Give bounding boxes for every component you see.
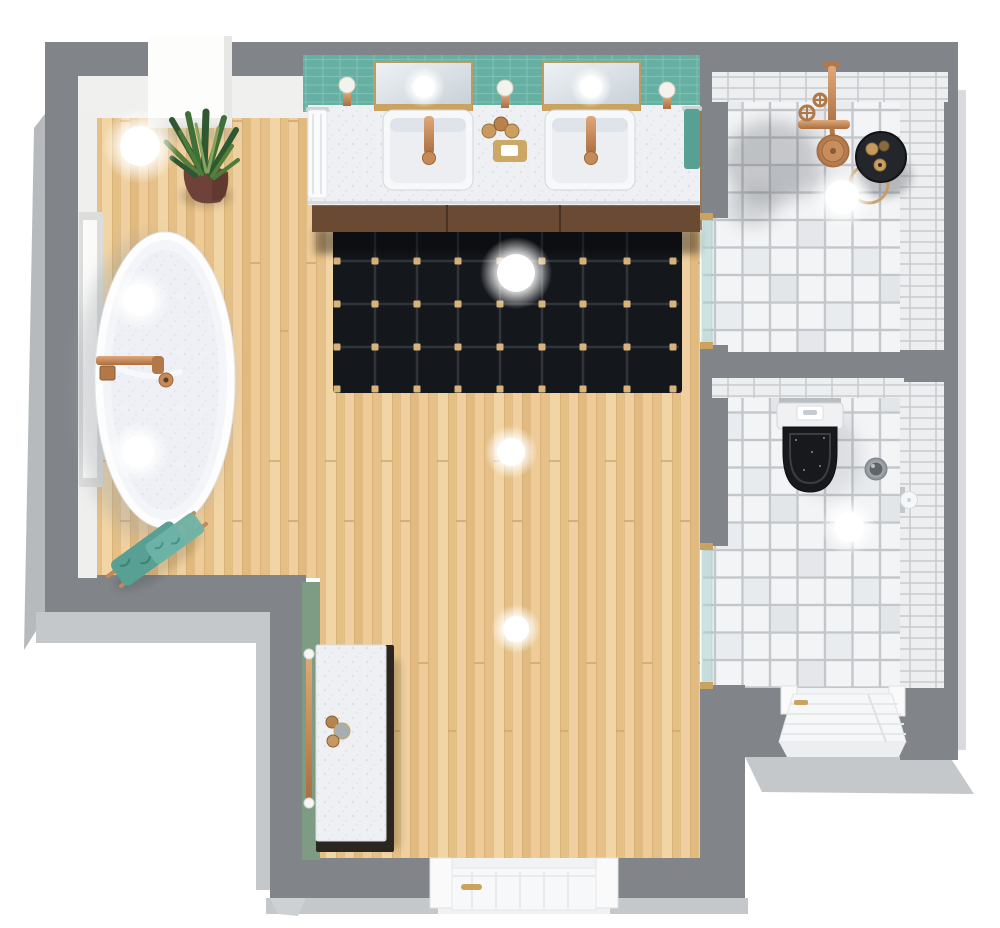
door-jamb-left [430,858,452,908]
towel-teal-vanity[interactable] [682,106,702,169]
stool-bottle [866,143,878,155]
ceiling-light [580,76,602,98]
tub-drain-hole [164,378,169,383]
soap-bar [501,145,518,156]
stool-bottle-nozzle [878,163,882,167]
stool-bottle [879,141,889,151]
toiletry-bottle [505,124,519,138]
shower-pole [828,66,836,128]
hinge [700,682,713,689]
door-handle [794,700,808,705]
floor-plan-canvas [0,0,1000,928]
divider-shower-wc [705,352,940,380]
floor-plan-render [0,0,1000,928]
lower-left-wall [45,575,306,612]
sink-drain [423,152,436,165]
glass-door-wc[interactable] [700,543,713,689]
wc-bottom-outer-face [745,757,974,794]
vanity-countertop-edge [308,201,700,204]
tub-spout-pipe [96,356,160,365]
sconce-bulb [659,82,675,98]
vanity-drawer-front [312,203,700,232]
ceiling-light [413,76,435,98]
lower-left-wall-outer-face [36,612,290,643]
ceiling-light [503,616,529,642]
wc-right-wall-tiles [900,382,944,688]
tub-spout-end [152,356,164,374]
side-cabinet[interactable] [304,645,400,852]
faucet [586,116,596,154]
sink-drain [585,152,598,165]
towel-cloth [684,109,700,169]
notch-wall [270,575,306,898]
bottom-wall-left [270,858,438,898]
towel-cloth [308,110,327,198]
ceiling-light [825,180,859,214]
sconce-bulb [497,80,513,96]
shower-head-center [830,148,836,154]
shower-right-wall-tiles [900,98,944,350]
notch-wall-outer-face [256,618,270,890]
jar-gold [327,735,339,747]
rail-cap-bottom [304,798,314,808]
faucet [424,116,434,154]
door-handle [461,884,482,890]
door-panel-face [779,742,906,757]
toilet-flush-button [803,410,817,415]
toilet[interactable] [777,398,843,492]
wc-bottom-wall-left [705,688,790,757]
sink-right[interactable] [545,110,635,190]
vanity-drawer-seam [559,203,561,232]
ceiling-light [122,436,154,468]
wc-top-wall-tiles [712,378,904,398]
hinge [700,342,713,349]
ceiling-light [123,284,155,316]
glass-panel [702,546,712,687]
sconce-mount [343,92,351,106]
hinge [700,213,713,220]
rail-cap-top [304,649,314,659]
tub-valve [100,366,115,380]
waste-bin[interactable] [865,458,887,480]
vanity-drawer-seam [446,203,448,232]
sink-left[interactable] [383,110,473,190]
glass-door-shower[interactable] [700,213,713,349]
bin-lid [870,463,883,476]
cabinet-ladder-rail [306,658,312,800]
ceiling-light [834,512,864,542]
ceiling-light [120,126,160,166]
exterior-door-wc[interactable] [779,686,906,757]
door-jamb-right [596,858,618,908]
cabinet-top-speckle [316,645,386,841]
tp-roll-core [907,498,911,502]
sconce-bulb [339,77,355,93]
niche-side-face [224,36,232,126]
bin-highlight [871,464,875,468]
glass-panel [702,216,712,347]
ceiling-light [497,438,525,466]
exterior-door-main[interactable] [430,858,618,914]
ceiling-light [497,254,535,292]
towel-white[interactable] [306,107,329,198]
left-wall-outer-face [24,110,48,650]
divider-main-shower [700,42,728,218]
hinge [700,543,713,550]
